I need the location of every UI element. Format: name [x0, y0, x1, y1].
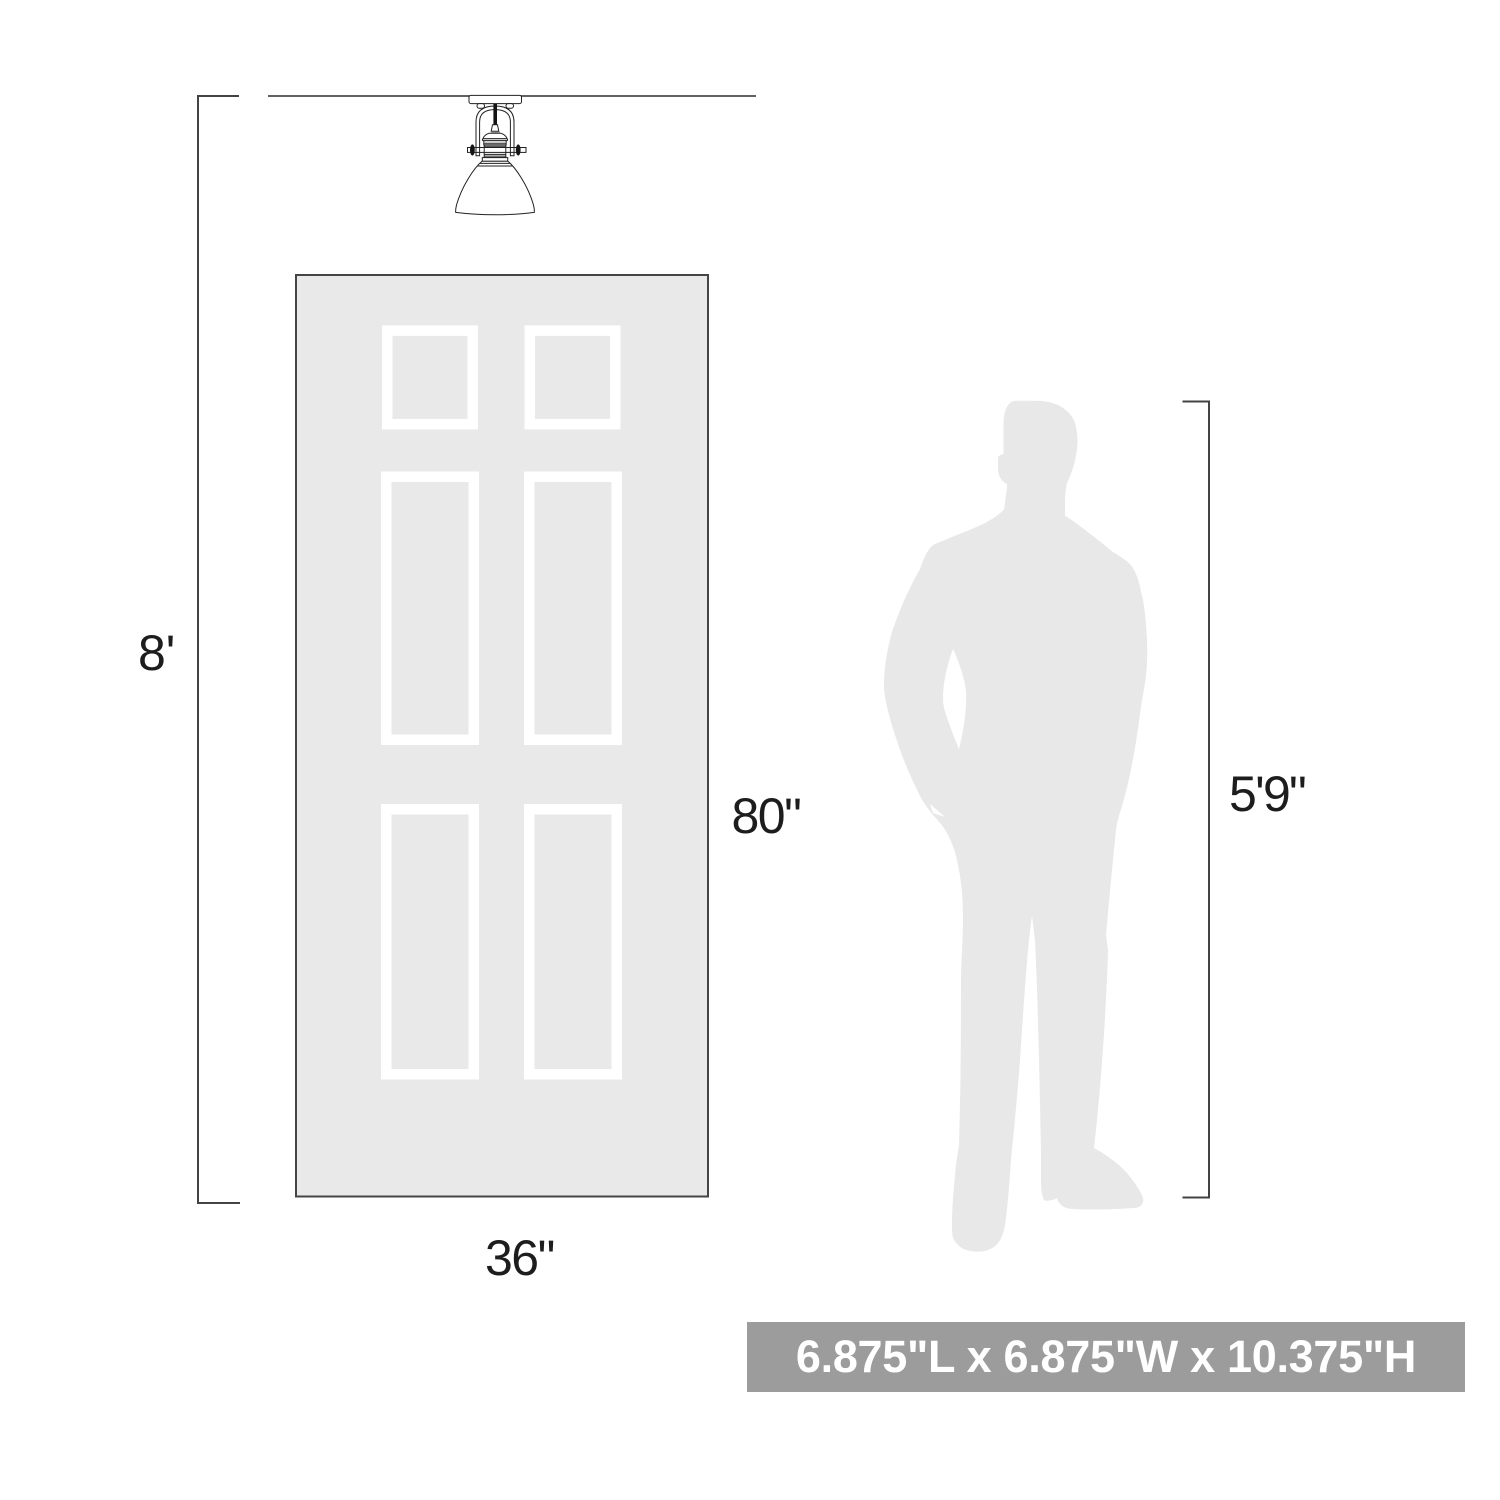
- svg-text:6.875"L x 6.875"W x 10.375"H: 6.875"L x 6.875"W x 10.375"H: [796, 1331, 1416, 1382]
- svg-text:5'9": 5'9": [1229, 766, 1305, 822]
- svg-text:80": 80": [732, 788, 801, 844]
- svg-text:8': 8': [138, 625, 175, 681]
- svg-text:36": 36": [485, 1230, 554, 1286]
